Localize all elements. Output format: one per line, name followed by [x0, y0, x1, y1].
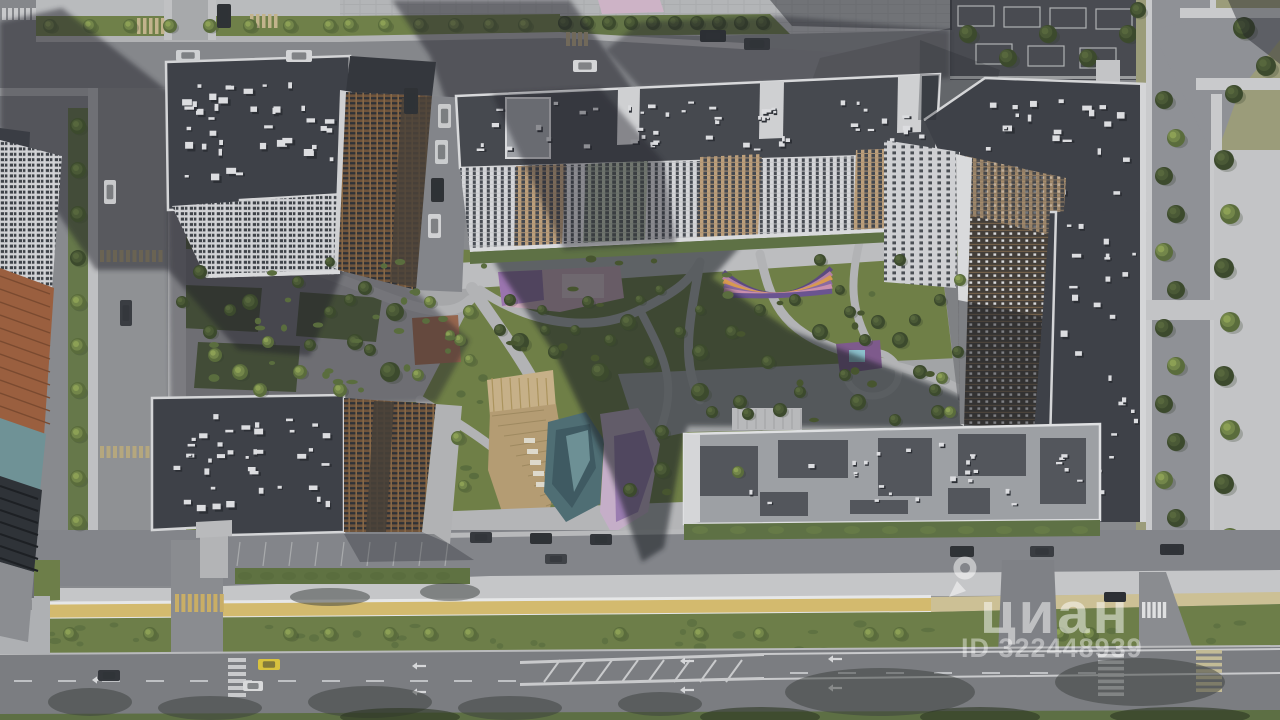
svg-text:ID 322448939: ID 322448939	[961, 633, 1143, 663]
